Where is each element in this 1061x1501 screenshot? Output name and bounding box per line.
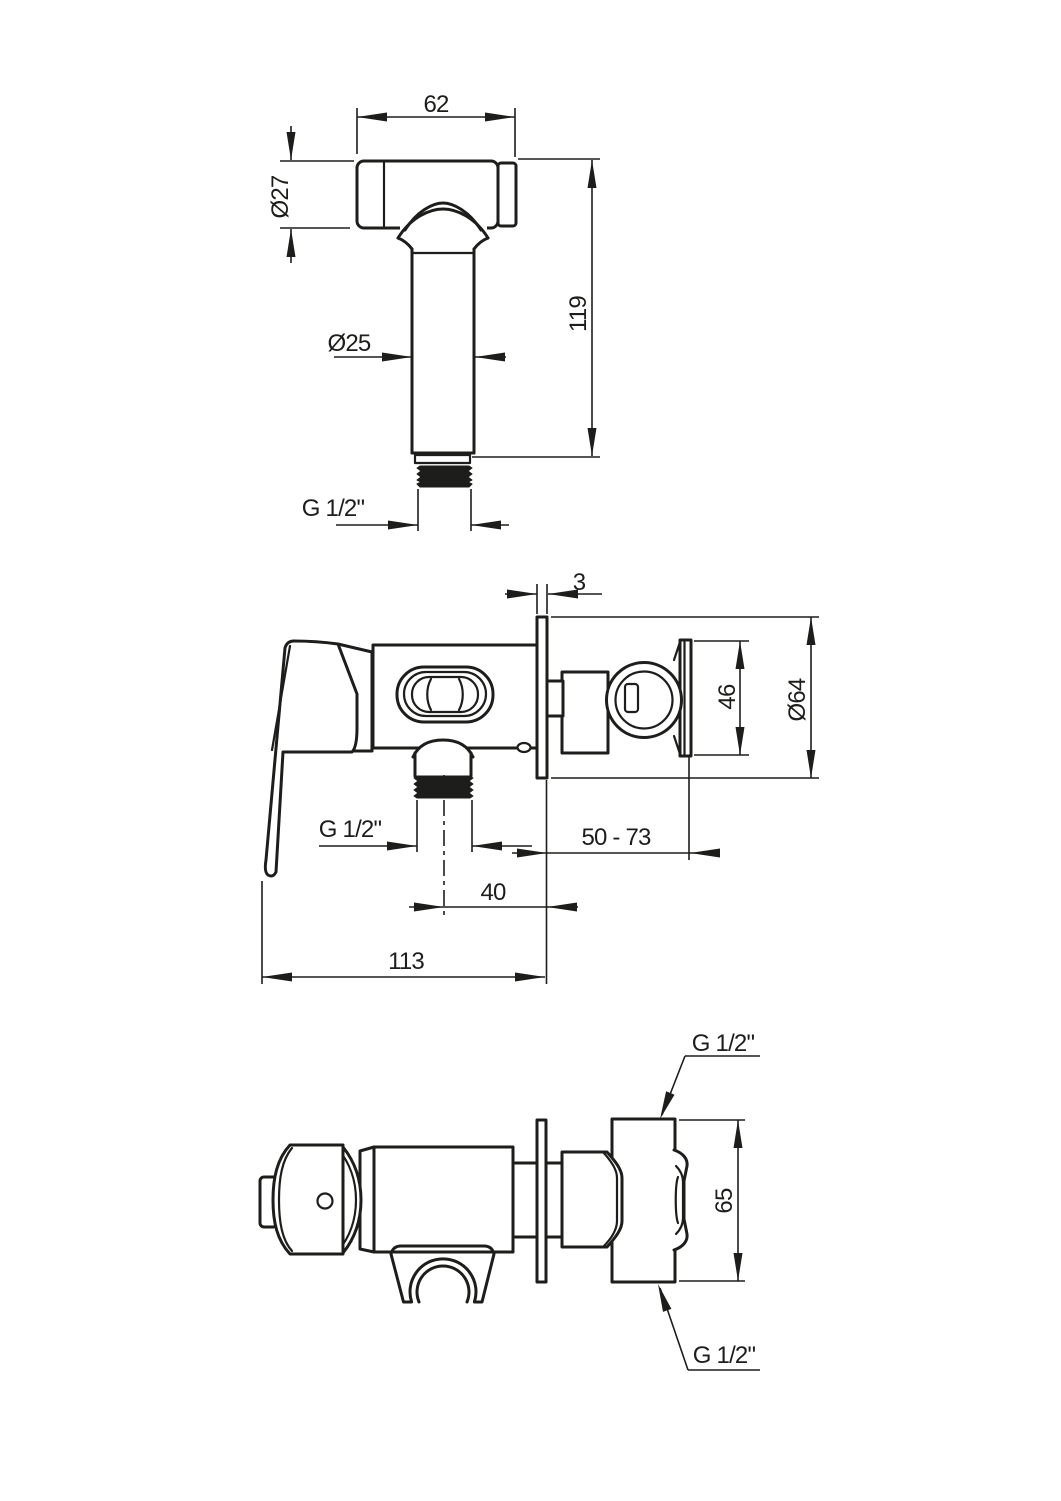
dim-holder-height: 46 bbox=[714, 684, 741, 710]
inwall-body-side bbox=[562, 672, 608, 753]
shower-holder-plan bbox=[391, 1246, 494, 1302]
sprayer-dimensions: 62 Ø27 Ø25 119 G 1/2" bbox=[267, 91, 600, 531]
holder-ring-inner bbox=[417, 1266, 469, 1302]
stub-behind-wall bbox=[546, 1163, 562, 1237]
sprayer-front-view bbox=[357, 161, 516, 487]
dim-sprayer-thread: G 1/2" bbox=[302, 495, 365, 522]
knob-hole-detail bbox=[318, 1194, 333, 1209]
dim-plate-thickness: 3 bbox=[573, 569, 586, 596]
inwall-stub-pipe bbox=[547, 681, 563, 716]
sprayer-thread-collar bbox=[415, 455, 470, 463]
dim-sprayer-height: 119 bbox=[565, 296, 592, 332]
mixer-plan-view bbox=[260, 1119, 688, 1302]
sprayer-head bbox=[357, 161, 498, 228]
technical-drawing-canvas: 62 Ø27 Ø25 119 G 1/2" bbox=[0, 0, 1061, 1501]
dim-mixer-length: 113 bbox=[388, 948, 424, 975]
shower-holder-side-inner bbox=[412, 677, 478, 712]
dim-inlet-thread-bottom: G 1/2" bbox=[693, 1342, 756, 1369]
dim-elbow-height: 65 bbox=[711, 1188, 738, 1214]
stub-front-wall bbox=[513, 1163, 537, 1237]
union-port bbox=[625, 684, 638, 712]
dim-mixer-thread: G 1/2" bbox=[319, 816, 382, 843]
dim-handle-diameter: Ø25 bbox=[328, 330, 371, 357]
dim-head-diameter: Ø27 bbox=[267, 175, 294, 218]
mixer-side-view bbox=[265, 617, 691, 916]
dim-inlet-thread-top: G 1/2" bbox=[692, 1030, 755, 1057]
sprayer-handle bbox=[412, 249, 474, 463]
mixer-outlet-thread bbox=[414, 776, 473, 798]
dim-outlet-offset: 40 bbox=[480, 879, 506, 906]
body-screw-detail bbox=[518, 743, 531, 752]
dim-wall-depth: 50 - 73 bbox=[581, 824, 651, 851]
sprayer-outlet-thread bbox=[417, 466, 472, 487]
dim-head-width: 62 bbox=[423, 91, 449, 118]
lever-dome-plan bbox=[343, 1147, 361, 1253]
sprayer-head-cap bbox=[498, 163, 516, 226]
mixer-body-plan bbox=[374, 1147, 513, 1252]
dim-plate-diameter: Ø64 bbox=[784, 678, 811, 721]
drawing-sheet: 62 Ø27 Ø25 119 G 1/2" bbox=[0, 0, 1061, 1501]
